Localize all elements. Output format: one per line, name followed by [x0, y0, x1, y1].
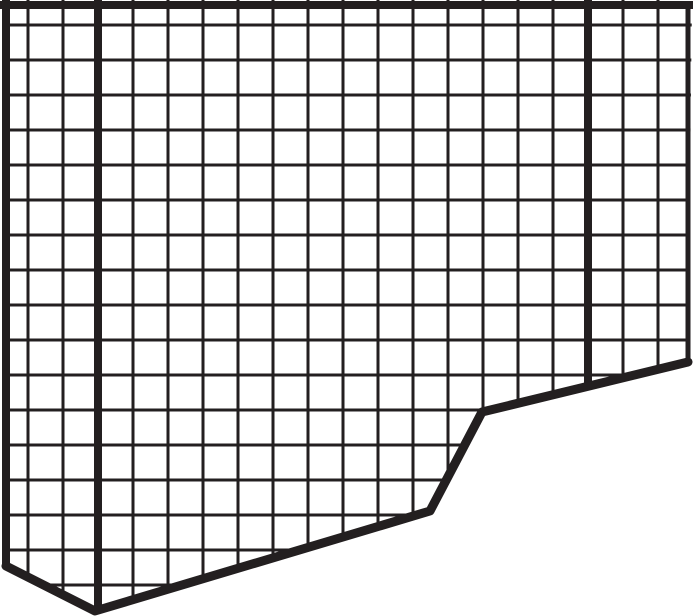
- torn-grid-figure: [0, 0, 693, 616]
- graph-paper-svg: [0, 0, 693, 616]
